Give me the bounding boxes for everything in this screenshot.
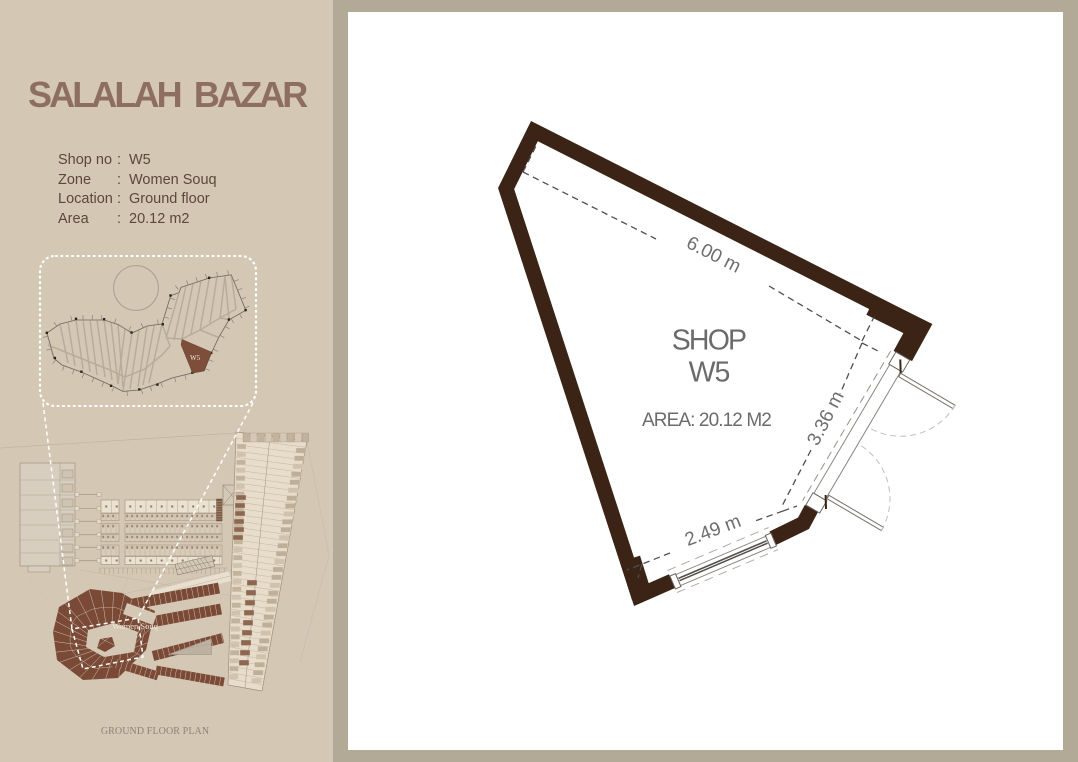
- svg-text:Women Souq: Women Souq: [112, 621, 159, 631]
- svg-text:3.36 m: 3.36 m: [803, 388, 848, 449]
- svg-text:W5: W5: [689, 357, 730, 389]
- svg-text:SHOP: SHOP: [672, 325, 746, 357]
- svg-text:W5: W5: [190, 354, 201, 362]
- svg-text:2.49 m: 2.49 m: [682, 511, 744, 551]
- svg-text:AREA: 20.12 M2: AREA: 20.12 M2: [642, 410, 771, 431]
